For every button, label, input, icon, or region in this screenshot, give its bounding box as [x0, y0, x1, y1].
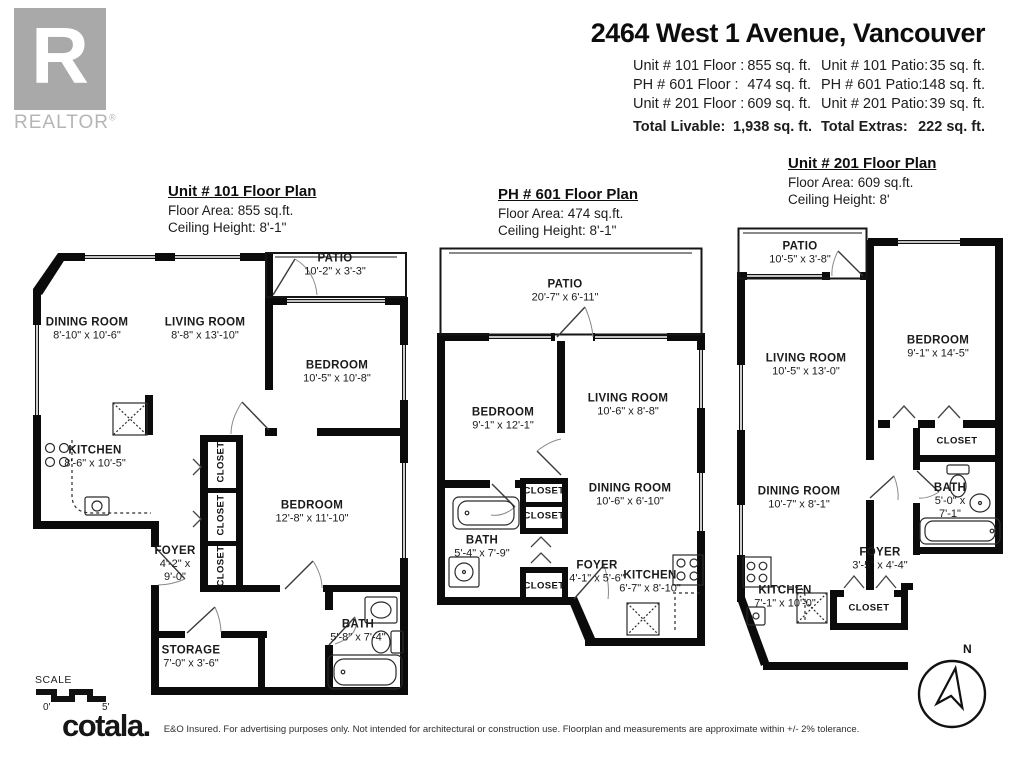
page-title: 2464 West 1 Avenue, Vancouver — [591, 18, 985, 49]
realtor-wordmark: REALTOR® — [14, 112, 132, 134]
north-label: N — [963, 642, 972, 656]
room-label-bedroom2-101: BEDROOM12'-8" x 11'-10" — [276, 500, 349, 525]
unit-101-floor-area: Floor Area: 855 sq.ft. — [168, 203, 316, 220]
scale-start-label: 0' — [43, 702, 50, 713]
realtor-r-letter: R — [31, 16, 89, 96]
bathtub-icon — [328, 655, 402, 689]
room-label-dining-201: DINING ROOM10'-7" x 8'-1" — [758, 486, 841, 511]
room-label-bath-101: BATH5'-8" x 7'-4" — [330, 619, 385, 644]
unit-101-plan: PATIO10'-2" x 3'-3" DINING ROOM8'-10" x … — [25, 245, 417, 705]
floorplan-page: R REALTOR® 2464 West 1 Avenue, Vancouver… — [0, 0, 1024, 768]
room-label-foyer-101: FOYER4'-2" x9'-0" — [154, 545, 195, 583]
unit-201-heading: Unit # 201 Floor Plan Floor Area: 609 sq… — [788, 155, 936, 209]
room-label-bath-201: BATH5'-0" x7'-1" — [934, 482, 966, 520]
unit-101-ceiling: Ceiling Height: 8'-1" — [168, 220, 316, 237]
closet-label-101: CLOSET — [216, 546, 227, 587]
room-label-bedroom1-101: BEDROOM10'-5" x 10'-8" — [303, 360, 371, 385]
disclaimer-text: E&O Insured. For advertising purposes on… — [164, 724, 860, 741]
kitchen-island-icon — [627, 603, 659, 635]
bathtub-icon — [920, 518, 1000, 544]
unit-601-ceiling: Ceiling Height: 8'-1" — [498, 223, 638, 240]
kitchen-island-icon — [113, 403, 147, 435]
room-label-patio-601: PATIO20'-7" x 6'-11" — [532, 279, 599, 304]
room-label-kitchen-101: KITCHEN8'-6" x 10'-5" — [64, 445, 126, 470]
north-compass: N — [908, 640, 998, 735]
unit-601-heading: PH # 601 Floor Plan Floor Area: 474 sq.f… — [498, 186, 638, 240]
bath-sink-icon — [970, 494, 990, 512]
room-label-living-101: LIVING ROOM8'-8" x 13'-10" — [165, 317, 246, 342]
closet-label-101: CLOSET — [216, 495, 227, 536]
closet-door-marks-101 — [193, 459, 201, 527]
door-arcs-201 — [832, 251, 939, 500]
room-label-dining-101: DINING ROOM8'-10" x 10'-6" — [46, 317, 129, 342]
room-label-dining-601: DINING ROOM10'-6" x 6'-10" — [589, 483, 672, 508]
unit-601-title: PH # 601 Floor Plan — [498, 186, 638, 203]
room-label-kitchen-201: KITCHEN7'-1" x 10'-0" — [754, 585, 816, 610]
closet-label-601: CLOSET — [524, 511, 565, 522]
room-label-kitchen-601: KITCHEN6'-7" x 8'-10" — [619, 570, 681, 595]
closet-door-marks-601 — [531, 537, 551, 563]
room-label-living-201: LIVING ROOM10'-5" x 13'-0" — [766, 353, 847, 378]
unit-601-plan: PATIO20'-7" x 6'-11" BEDROOM9'-1" x 12'-… — [437, 245, 709, 655]
room-label-living-601: LIVING ROOM10'-6" x 8'-8" — [588, 393, 669, 418]
realtor-logo-icon: R — [14, 8, 106, 110]
stove-icon — [743, 557, 771, 587]
north-arrow-icon — [908, 640, 998, 735]
summary-row: Unit # 201 Floor :609 sq. ft. Unit # 201… — [633, 95, 985, 114]
closet-label-601: CLOSET — [524, 581, 565, 592]
cotala-logo: cotala. — [62, 710, 150, 741]
closet-label-201: CLOSET — [937, 436, 978, 447]
room-label-patio-101: PATIO10'-2" x 3'-3" — [304, 253, 366, 278]
summary-row: PH # 601 Floor :474 sq. ft. PH # 601 Pat… — [633, 76, 985, 95]
room-label-patio-201: PATIO10'-5" x 3'-8" — [769, 241, 831, 266]
unit-201-floor-area: Floor Area: 609 sq.ft. — [788, 175, 936, 192]
summary-totals-row: Total Livable:1,938 sq. ft. Total Extras… — [633, 118, 985, 137]
closet-label-101: CLOSET — [216, 442, 227, 483]
summary-row: Unit # 101 Floor :855 sq. ft. Unit # 101… — [633, 57, 985, 76]
room-label-bath-601: BATH5'-4" x 7'-9" — [454, 535, 509, 560]
closet-label-201: CLOSET — [849, 603, 890, 614]
room-label-foyer-601: FOYER4'-1" x 5'-6" — [569, 560, 624, 585]
room-label-bedroom-601: BEDROOM9'-1" x 12'-1" — [472, 407, 534, 432]
footer: cotala. E&O Insured. For advertising pur… — [62, 710, 859, 741]
unit-201-title: Unit # 201 Floor Plan — [788, 155, 936, 172]
kitchen-sink-icon — [85, 497, 109, 515]
kitchen-counter-outline — [673, 593, 701, 633]
unit-201-plan: PATIO10'-5" x 3'-8" LIVING ROOM10'-5" x … — [735, 225, 1007, 685]
closet-label-601: CLOSET — [524, 486, 565, 497]
registered-symbol: ® — [109, 113, 117, 123]
unit-101-title: Unit # 101 Floor Plan — [168, 183, 316, 200]
room-label-storage-101: STORAGE7'-0" x 3'-6" — [162, 645, 221, 670]
room-label-foyer-201: FOYER3'-5" x 4'-4" — [852, 547, 907, 572]
unit-101-heading: Unit # 101 Floor Plan Floor Area: 855 sq… — [168, 183, 316, 237]
room-label-bedroom-201: BEDROOM9'-1" x 14'-5" — [907, 335, 969, 360]
realtor-logo: R REALTOR® — [14, 8, 132, 134]
scale-label: SCALE — [35, 674, 72, 686]
bath-sink-icon — [449, 557, 479, 587]
area-summary: Unit # 101 Floor :855 sq. ft. Unit # 101… — [633, 57, 985, 137]
unit-201-ceiling: Ceiling Height: 8' — [788, 192, 936, 209]
unit-601-floor-area: Floor Area: 474 sq.ft. — [498, 206, 638, 223]
bathtub-icon — [453, 497, 519, 529]
unit-201-floorplan-drawing — [735, 225, 1007, 685]
